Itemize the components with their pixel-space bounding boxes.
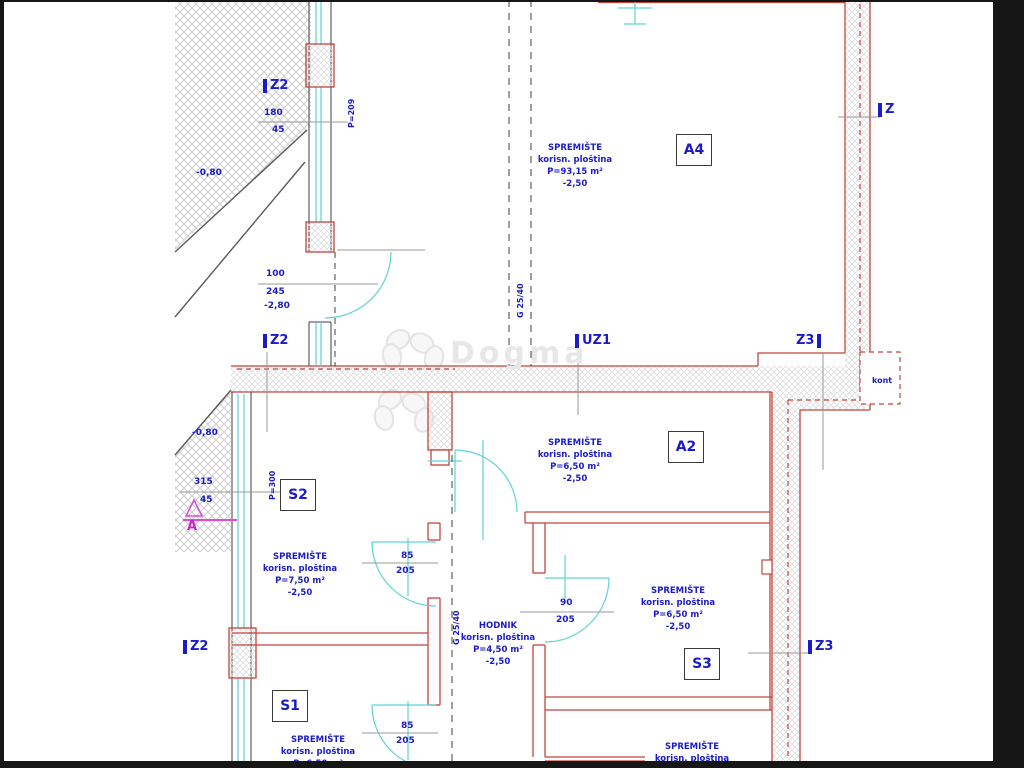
room-area-type: korisn. ploština — [616, 597, 740, 609]
mark-bar — [878, 103, 882, 117]
room-level: -2,50 — [616, 621, 740, 633]
room-level: -2,50 — [513, 178, 637, 190]
letterbox-bottom — [0, 761, 1024, 768]
terrain-level-mid: -0,80 — [192, 428, 218, 438]
mark-label: Z3 — [796, 334, 814, 348]
dim-door-width: 100 — [266, 269, 285, 279]
dim-window-width: 180 — [264, 108, 283, 118]
room-area-type: korisn. ploština — [256, 746, 380, 758]
mark-z2-bottom: Z2 — [183, 640, 208, 654]
room-area-type: korisn. ploština — [513, 154, 637, 166]
room-area: P=4,50 m² — [436, 644, 560, 656]
room-level: -2,50 — [238, 587, 362, 599]
mark-label: UZ1 — [582, 334, 611, 348]
letterbox-left — [0, 0, 4, 768]
mark-z-right: Z — [878, 103, 894, 117]
letterbox-top — [0, 0, 1024, 2]
room-text-s3: SPREMIŠTE korisn. ploština P=6,50 m² -2,… — [616, 585, 740, 633]
mark-uz1: UZ1 — [575, 334, 611, 348]
room-name: SPREMIŠTE — [238, 551, 362, 563]
mark-bar — [817, 334, 821, 348]
dim-door-s1-width: 85 — [401, 721, 414, 731]
mark-label: Z — [885, 103, 894, 117]
mark-bar — [263, 334, 267, 348]
level-door: -2,80 — [264, 301, 290, 311]
room-text-s2: SPREMIŠTE korisn. ploština P=7,50 m² -2,… — [238, 551, 362, 599]
dim-door-hodnik-height: 205 — [556, 615, 575, 625]
kont-label: kont — [872, 376, 892, 386]
room-area-type: korisn. ploština — [513, 449, 637, 461]
room-tag-a2: A2 — [668, 431, 704, 463]
mark-z2-top: Z2 — [263, 79, 288, 93]
room-name: SPREMIŠTE — [513, 142, 637, 154]
mark-bar — [808, 640, 812, 654]
room-level: -2,50 — [436, 656, 560, 668]
mark-z3-top: Z3 — [796, 334, 821, 348]
dim-door-height: 245 — [266, 287, 285, 297]
parapet-note-s2: P=300 — [268, 471, 278, 500]
room-tag-s3: S3 — [684, 648, 720, 680]
room-area: P=93,15 m² — [513, 166, 637, 178]
terrain-hatch — [175, 0, 311, 552]
floor-plan-viewer: Dogma Z2 Z2 Z2 Z UZ1 Z3 Z3 kont A4 A2 S2… — [0, 0, 1024, 768]
room-area: P=6,50 m² — [513, 461, 637, 473]
room-text-a2: SPREMIŠTE korisn. ploština P=6,50 m² -2,… — [513, 437, 637, 485]
mark-z2-mid: Z2 — [263, 334, 288, 348]
dim-door-hodnik-width: 90 — [560, 598, 573, 608]
mark-label: Z3 — [815, 640, 833, 654]
dim-door-s2-height: 205 — [396, 566, 415, 576]
room-name: SPREMIŠTE — [616, 585, 740, 597]
mark-bar — [263, 79, 267, 93]
room-tag-s1: S1 — [272, 690, 308, 722]
parapet-note-top: P=209 — [347, 99, 357, 128]
mark-label: Z2 — [270, 334, 288, 348]
room-area: P=7,50 m² — [238, 575, 362, 587]
dim-door-s1-height: 205 — [396, 736, 415, 746]
terrain-level-top: -0,80 — [196, 168, 222, 178]
room-name: SPREMIŠTE — [630, 741, 754, 753]
room-area: P=6,50 m² — [616, 609, 740, 621]
room-name: SPREMIŠTE — [513, 437, 637, 449]
room-text-a4: SPREMIŠTE korisn. ploština P=93,15 m² -2… — [513, 142, 637, 190]
window-wall-top — [306, 0, 391, 366]
watermark-text: Dogma — [450, 336, 589, 371]
mark-z3-right: Z3 — [808, 640, 833, 654]
room-level: -2,50 — [513, 473, 637, 485]
dim-window-s2-width: 315 — [194, 477, 213, 487]
room-tag-s2: S2 — [280, 479, 316, 511]
mark-label: Z2 — [190, 640, 208, 654]
letterbox-right — [993, 0, 1024, 768]
section-letter: A — [187, 522, 197, 532]
beam-note-mid: G 25/40 — [452, 610, 462, 645]
mark-label: Z2 — [270, 79, 288, 93]
mark-bar — [575, 334, 579, 348]
beam-note-top: G 25/40 — [516, 283, 526, 318]
room-name: SPREMIŠTE — [256, 734, 380, 746]
mark-bar — [183, 640, 187, 654]
room-tag-a4: A4 — [676, 134, 712, 166]
dim-door-s2-width: 85 — [401, 551, 414, 561]
room-area-type: korisn. ploština — [238, 563, 362, 575]
dim-window-height: 45 — [272, 125, 285, 135]
dim-window-s2-height: 45 — [200, 495, 213, 505]
